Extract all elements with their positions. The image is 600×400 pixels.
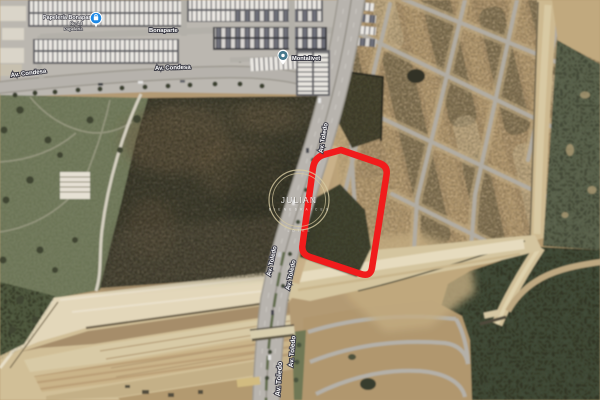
svg-text:B I E N E S R A I C E S: B I E N E S R A I C E S xyxy=(269,208,330,212)
svg-text:Papelería: Papelería xyxy=(64,27,83,32)
svg-text:Av. Condesa: Av. Condesa xyxy=(155,65,192,72)
svg-text:No 4.8: No 4.8 xyxy=(70,21,83,26)
svg-text:Bonaparte: Bonaparte xyxy=(149,28,178,34)
svg-text:Montalivet: Montalivet xyxy=(292,56,320,62)
svg-text:JULIAN: JULIAN xyxy=(281,195,318,205)
svg-text:L O T E S: L O T E S xyxy=(288,229,311,233)
